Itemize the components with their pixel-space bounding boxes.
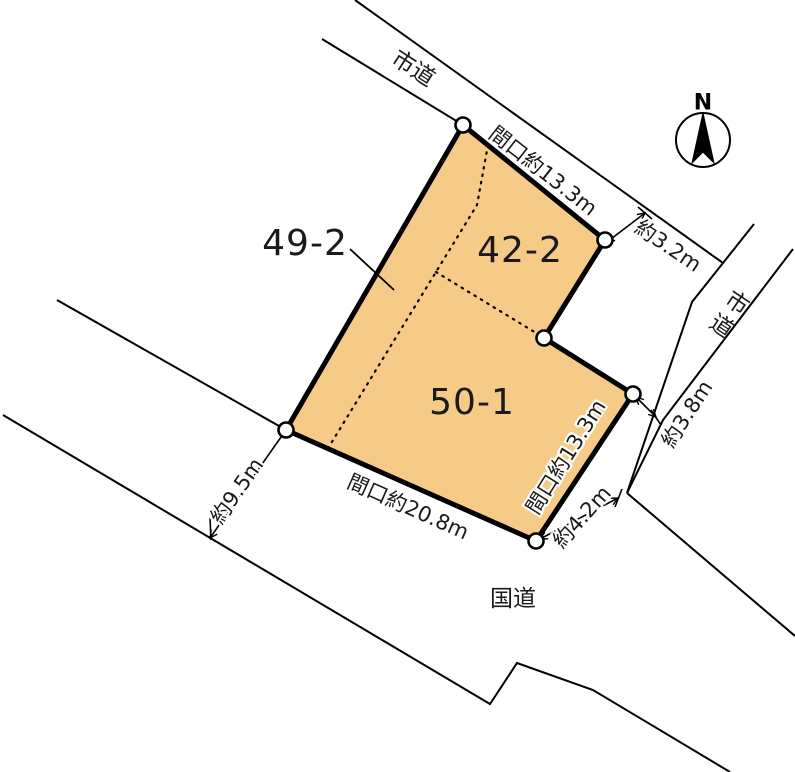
vertex-marker	[279, 423, 294, 438]
measure-tick-9-5m	[210, 518, 211, 540]
road-label-bottom-kokudou: 国道	[490, 587, 536, 611]
plot-map-diagram: N 49-2 42-2 50-1 市道 市道 国道 間口約13.3m 約3.2m…	[0, 0, 795, 772]
measure-tick-4-2m	[615, 489, 622, 507]
parcel-label-50-1: 50-1	[429, 384, 515, 422]
compass-north-label: N	[694, 91, 712, 114]
vertex-marker	[598, 233, 613, 248]
road-line-left-upper	[57, 300, 286, 430]
parcel-label-42-2: 42-2	[477, 232, 563, 270]
road-line-top-near	[322, 39, 463, 125]
compass-needle-icon	[692, 113, 714, 163]
vertex-marker	[626, 387, 641, 402]
vertex-marker	[456, 118, 471, 133]
road-line-right-outer	[627, 249, 793, 493]
compass	[676, 113, 730, 167]
road-line-bottom-south	[3, 415, 730, 772]
road-line-bottom-north	[627, 493, 795, 636]
vertex-marker	[529, 534, 544, 549]
parcel-label-49-2: 49-2	[262, 225, 348, 263]
vertex-marker	[537, 331, 552, 346]
diagram-drawing	[0, 0, 795, 772]
